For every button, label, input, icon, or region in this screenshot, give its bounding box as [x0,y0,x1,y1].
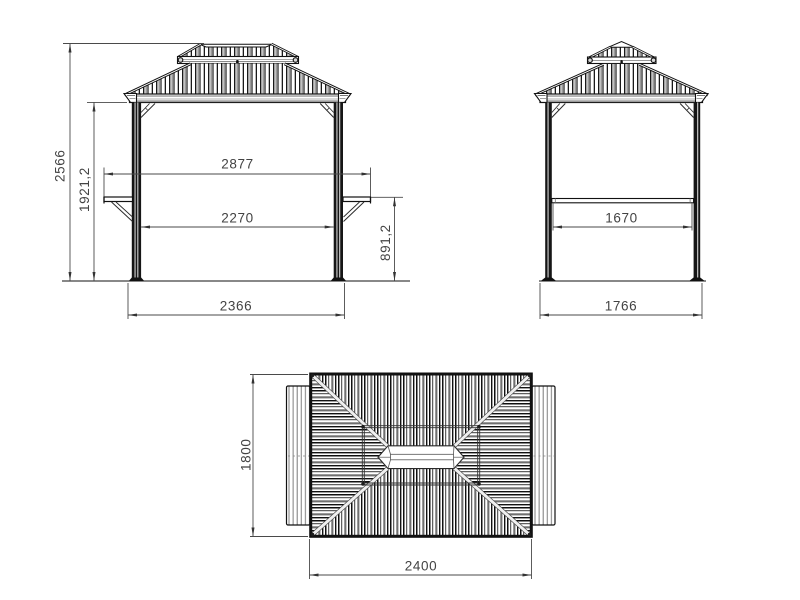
svg-text:2400: 2400 [405,559,437,574]
svg-text:2877: 2877 [221,157,253,172]
svg-text:2270: 2270 [221,211,253,226]
svg-text:2566: 2566 [53,150,68,182]
svg-text:891,2: 891,2 [378,224,393,261]
svg-text:2366: 2366 [220,299,252,314]
svg-text:1921,2: 1921,2 [77,167,92,212]
svg-text:1766: 1766 [605,299,637,314]
svg-text:1800: 1800 [239,439,254,471]
svg-text:1670: 1670 [605,211,637,226]
